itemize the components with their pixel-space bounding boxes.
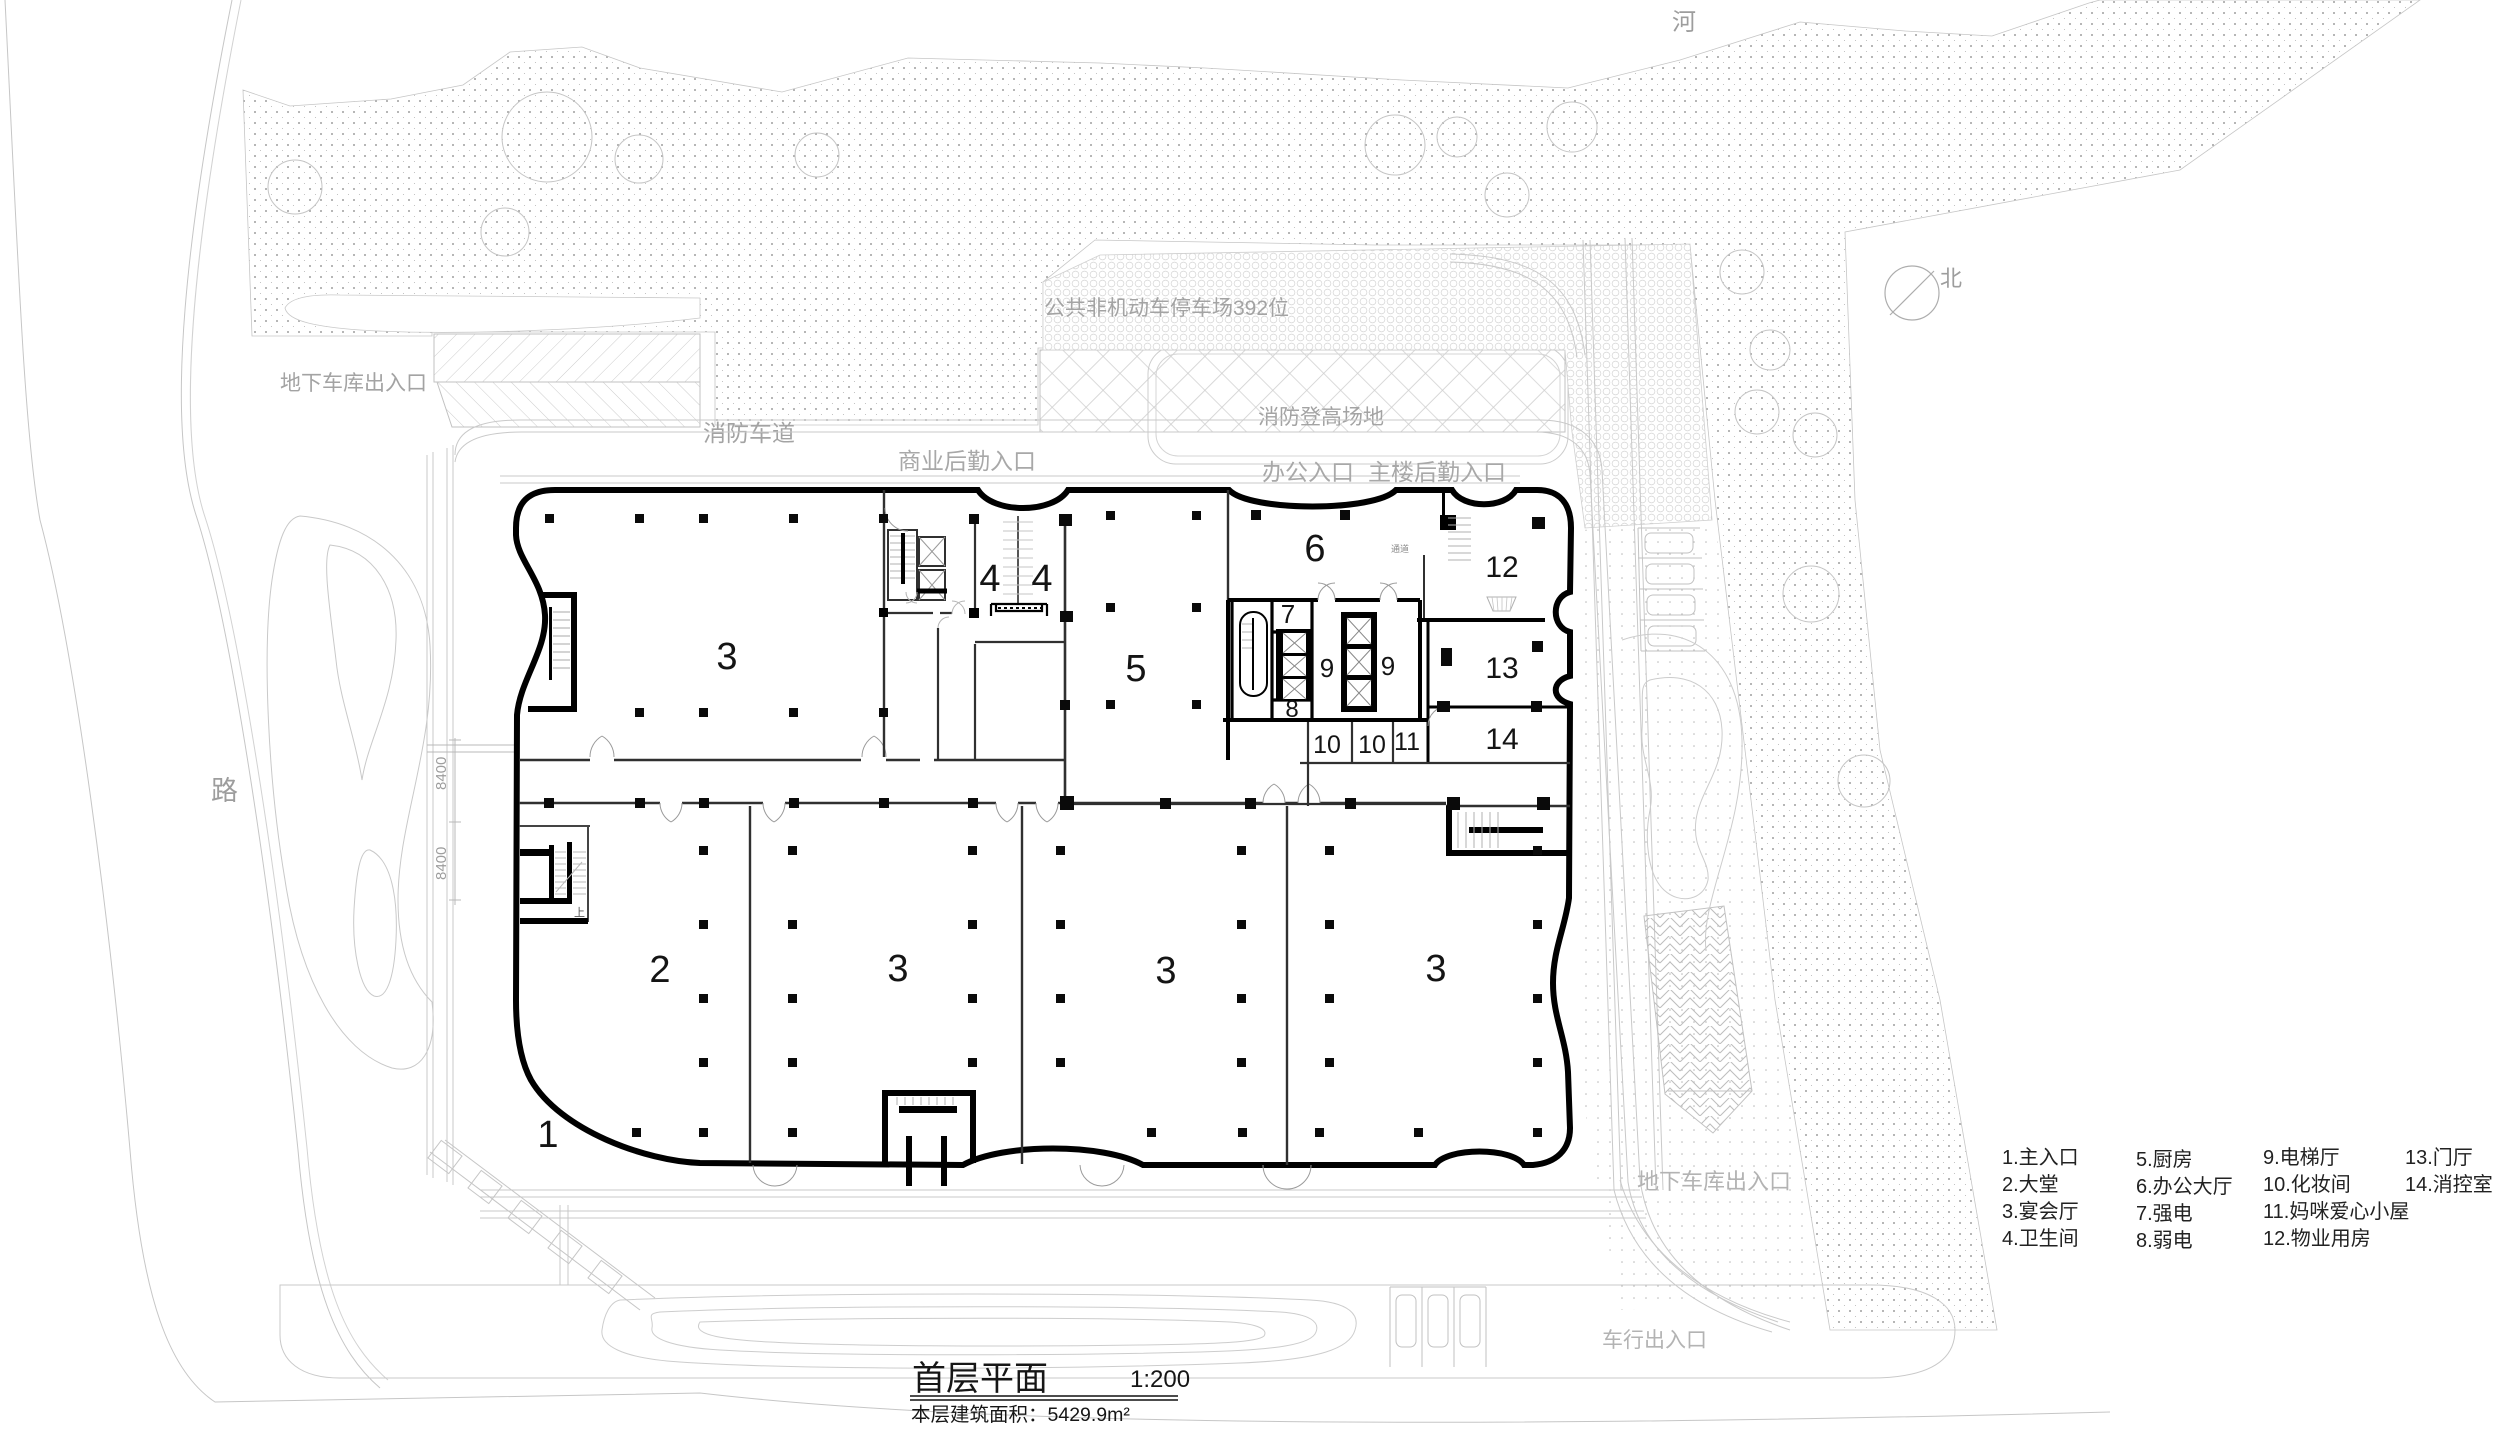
svg-text:北: 北 [1940, 266, 1962, 291]
svg-text:本层建筑面积：5429.9m²: 本层建筑面积：5429.9m² [911, 1404, 1130, 1426]
svg-text:3: 3 [1425, 948, 1446, 990]
svg-text:办公入口: 办公入口 [1262, 459, 1354, 485]
svg-text:13: 13 [1485, 652, 1518, 685]
svg-text:2: 2 [649, 949, 670, 991]
svg-text:13.门厅: 13.门厅 [2405, 1146, 2473, 1169]
svg-text:14: 14 [1485, 723, 1518, 756]
svg-text:1.主入口: 1.主入口 [2002, 1146, 2079, 1169]
svg-text:11.妈咪爱心小屋: 11.妈咪爱心小屋 [2263, 1200, 2409, 1223]
svg-text:12.物业用房: 12.物业用房 [2263, 1227, 2371, 1250]
svg-text:公共非机动车停车场392位: 公共非机动车停车场392位 [1044, 297, 1289, 320]
svg-text:9: 9 [1381, 651, 1395, 681]
svg-text:上: 上 [574, 906, 585, 919]
svg-text:6: 6 [1304, 528, 1325, 570]
svg-text:1: 1 [537, 1114, 558, 1156]
svg-text:14.消控室: 14.消控室 [2405, 1173, 2493, 1196]
svg-text:7.强电: 7.强电 [2136, 1202, 2193, 1225]
svg-text:8400: 8400 [433, 757, 450, 790]
svg-text:8.弱电: 8.弱电 [2136, 1229, 2193, 1252]
svg-text:6.办公大厅: 6.办公大厅 [2136, 1175, 2233, 1198]
svg-text:5: 5 [1125, 648, 1146, 690]
svg-text:消防登高场地: 消防登高场地 [1258, 406, 1384, 429]
svg-text:商业后勤入口: 商业后勤入口 [898, 448, 1036, 474]
svg-text:地下车库出入口: 地下车库出入口 [280, 372, 427, 395]
svg-text:8: 8 [1285, 696, 1298, 723]
svg-text:通道: 通道 [1391, 543, 1409, 554]
svg-text:3: 3 [887, 948, 908, 990]
svg-text:消防车道: 消防车道 [703, 420, 795, 446]
svg-text:河: 河 [1672, 9, 1696, 36]
svg-text:9.电梯厅: 9.电梯厅 [2263, 1146, 2340, 1169]
svg-text:7: 7 [1281, 599, 1295, 629]
svg-text:车行出入口: 车行出入口 [1602, 1329, 1707, 1352]
svg-text:9: 9 [1320, 653, 1334, 683]
svg-text:10: 10 [1358, 731, 1386, 759]
svg-text:10.化妆间: 10.化妆间 [2263, 1173, 2351, 1196]
svg-text:路: 路 [211, 776, 238, 806]
svg-text:3: 3 [716, 636, 737, 678]
svg-text:首层平面: 首层平面 [912, 1360, 1048, 1398]
svg-text:8400: 8400 [433, 847, 450, 880]
svg-text:4: 4 [1031, 558, 1052, 600]
svg-text:10: 10 [1313, 731, 1341, 759]
svg-text:12: 12 [1485, 551, 1518, 584]
svg-text:5.厨房: 5.厨房 [2136, 1148, 2193, 1171]
svg-text:2.大堂: 2.大堂 [2002, 1173, 2059, 1196]
svg-text:3: 3 [1155, 950, 1176, 992]
svg-text:4.卫生间: 4.卫生间 [2002, 1227, 2079, 1250]
svg-text:主楼后勤入口: 主楼后勤入口 [1368, 459, 1506, 485]
svg-text:3.宴会厅: 3.宴会厅 [2002, 1200, 2079, 1223]
svg-text:地下车库出入口: 地下车库出入口 [1637, 1169, 1791, 1194]
svg-text:4: 4 [979, 558, 1000, 600]
svg-text:1:200: 1:200 [1130, 1366, 1190, 1393]
svg-text:11: 11 [1394, 728, 1420, 756]
